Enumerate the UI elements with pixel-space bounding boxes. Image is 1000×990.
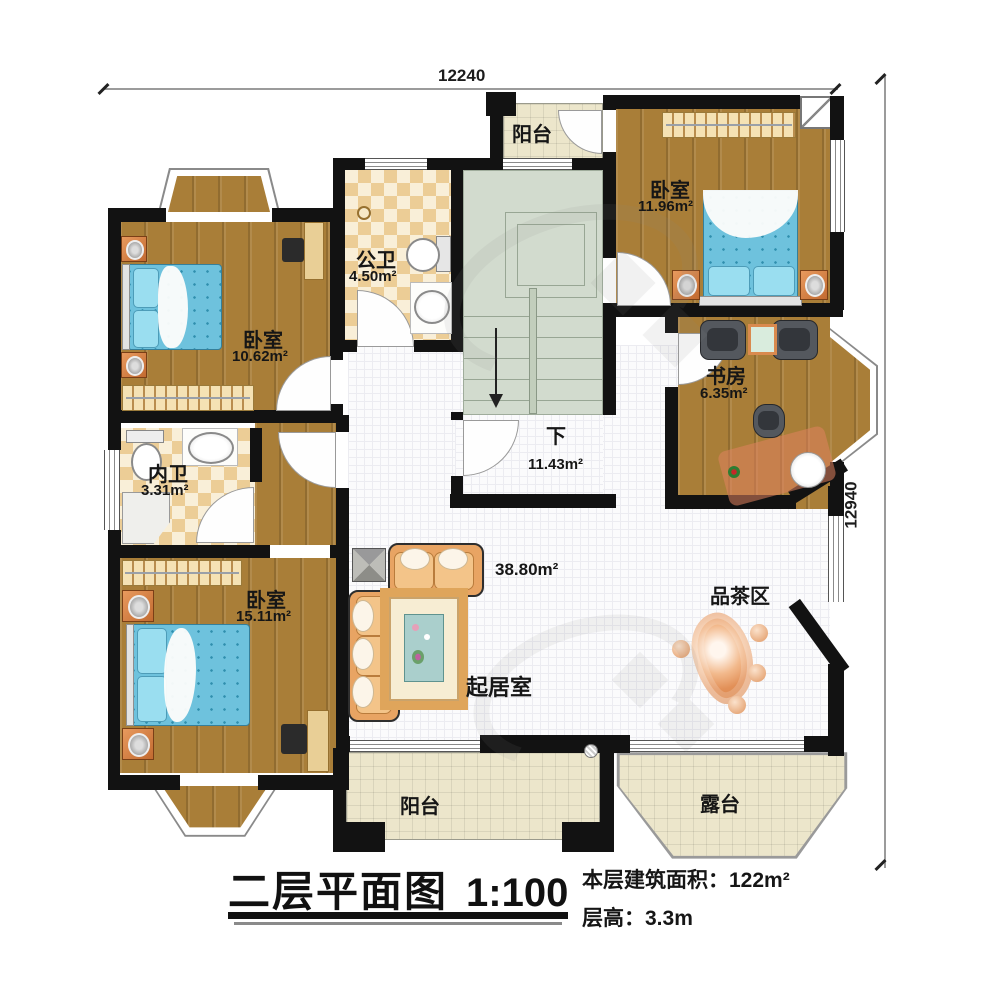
pillow (708, 266, 750, 296)
info-block: 本层建筑面积：122m² 层高：3.3m (582, 864, 790, 932)
sofa-pillow (352, 638, 374, 670)
pillow (753, 266, 795, 296)
tv-cabinet (304, 222, 324, 280)
title-block: 二层平面图 1:100 (228, 858, 568, 919)
area-label-bedroom-bl: 15.11m² (236, 608, 291, 625)
title-underline (228, 912, 568, 919)
sofa-pillow (352, 600, 374, 632)
stool (748, 664, 766, 682)
info-area: 本层建筑面积：122m² (582, 864, 790, 894)
room-label-stair-hall: 下 (546, 420, 566, 449)
side-table (352, 548, 386, 582)
wall (451, 412, 463, 420)
chair (700, 320, 746, 360)
dimension-line-top (105, 88, 838, 90)
bed-headboard (122, 264, 130, 350)
area-label-public-bath: 4.50m² (349, 268, 397, 285)
wall (258, 775, 342, 790)
nightstand (800, 270, 828, 300)
table-decor (424, 634, 430, 640)
stool (750, 624, 768, 642)
tv (282, 238, 304, 262)
wall (603, 152, 616, 258)
area-label-bedroom-tr: 11.96m² (638, 198, 693, 215)
chair (772, 320, 818, 360)
wall (450, 494, 616, 508)
sofa-pillow (400, 548, 430, 570)
bay-window (158, 168, 280, 212)
sofa-pillow (438, 548, 468, 570)
window (830, 140, 845, 232)
sink-icon (414, 290, 450, 324)
dimension-line-right (884, 76, 886, 868)
bay-window (830, 328, 878, 472)
window (828, 516, 844, 602)
wall (603, 306, 616, 415)
side-table (748, 324, 777, 355)
wall (665, 317, 678, 333)
blanket (158, 266, 188, 348)
wall (490, 112, 503, 170)
area-label-private-bath: 3.31m² (141, 482, 189, 499)
nightstand (122, 590, 154, 622)
wall (828, 486, 844, 516)
wall (336, 488, 349, 545)
bay-window (152, 786, 278, 840)
wall (108, 775, 180, 790)
wall (665, 387, 678, 509)
bed-headboard (126, 624, 134, 726)
nightstand (121, 352, 147, 378)
area-label-living: 38.80m² (495, 560, 558, 580)
info-height: 层高：3.3m (582, 902, 790, 932)
closet (662, 112, 796, 138)
dim-top-label: 12240 (438, 66, 485, 86)
bay-floor (168, 176, 270, 212)
tv-cabinet (307, 710, 329, 772)
corner-window (800, 96, 833, 129)
wall (451, 158, 463, 352)
wall (572, 158, 603, 170)
wall (336, 415, 349, 432)
floor-plan: 12240 12940 (0, 0, 1000, 990)
room-label-living: 起居室 (466, 670, 532, 702)
wall (830, 232, 844, 310)
dim-right-label: 12940 (842, 481, 862, 528)
area-label-stair-hall: 11.43m² (528, 456, 583, 473)
sofa-pillow (352, 676, 374, 708)
waste-bin (790, 452, 826, 488)
room-label-balcony-bottom: 阳台 (400, 790, 440, 819)
wall (345, 340, 357, 352)
pillow (137, 628, 167, 674)
table-decor (412, 624, 419, 631)
stair-arrow (495, 328, 497, 396)
title-underline-shadow (234, 922, 562, 925)
toilet-icon (406, 238, 440, 272)
plant-icon (728, 466, 740, 478)
plan-title: 二层平面图 (228, 858, 448, 919)
stair-arrow-head (489, 394, 503, 408)
stool (672, 640, 690, 658)
wall (414, 340, 451, 352)
wall (108, 415, 121, 450)
nightstand (121, 236, 147, 262)
sliding-door (350, 740, 480, 752)
bed-headboard (699, 296, 802, 306)
stair-rail (529, 288, 537, 414)
wall (108, 545, 120, 790)
wall (108, 545, 270, 558)
sink-icon (188, 432, 234, 464)
wall (108, 410, 343, 423)
flower-icon (412, 650, 424, 664)
wall (333, 158, 345, 352)
nightstand (122, 728, 154, 760)
wall (250, 428, 262, 482)
coffee-table (404, 614, 444, 682)
wall (108, 208, 121, 422)
wardrobe (122, 560, 242, 586)
area-label-study: 6.35m² (700, 385, 748, 402)
room-label-tea-area: 品茶区 (710, 580, 770, 609)
wall (804, 736, 832, 752)
stool (728, 696, 746, 714)
room-label-balcony-top: 阳台 (512, 118, 552, 147)
stair-landing-inner (517, 224, 585, 286)
pillow (137, 676, 167, 722)
desk-chair (753, 404, 785, 438)
wall (333, 822, 385, 852)
window (365, 158, 427, 170)
toilet-tank (126, 430, 164, 443)
light-icon (357, 206, 371, 220)
window (500, 158, 572, 170)
area-label-bedroom-left: 10.62m² (232, 348, 288, 365)
wall (562, 822, 614, 852)
wall (603, 95, 800, 109)
pillow (133, 310, 159, 348)
room-label-terrace: 露台 (700, 788, 740, 817)
window (104, 450, 120, 530)
plan-scale: 1:100 (466, 871, 568, 916)
pillow (133, 268, 159, 308)
tv (281, 724, 307, 754)
nightstand (672, 270, 700, 300)
sliding-door (630, 740, 806, 752)
drain-icon (584, 744, 598, 758)
wall (830, 96, 844, 140)
wall (345, 158, 365, 170)
wardrobe (122, 385, 254, 411)
